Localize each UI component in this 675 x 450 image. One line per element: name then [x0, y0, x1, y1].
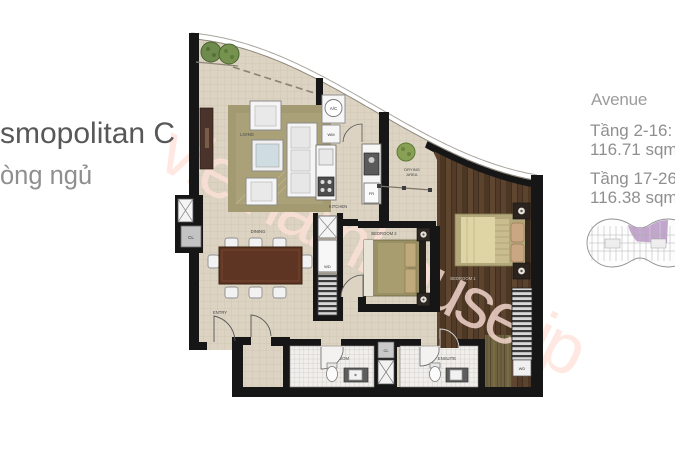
- svg-text:LIVING: LIVING: [240, 132, 254, 137]
- svg-text:smopolitan C: smopolitan C: [0, 117, 175, 150]
- svg-text:FR: FR: [369, 191, 374, 196]
- svg-text:CL: CL: [383, 348, 389, 353]
- svg-text:Tầng 17-26:: Tầng 17-26:: [590, 169, 675, 188]
- svg-text:ENTRY: ENTRY: [213, 310, 227, 315]
- svg-text:DINING: DINING: [251, 229, 266, 234]
- svg-text:Avenue: Avenue: [591, 90, 647, 109]
- svg-text:WM: WM: [327, 132, 334, 137]
- svg-text:BEDROOM 1: BEDROOM 1: [450, 276, 476, 281]
- svg-text:òng ngủ: òng ngủ: [0, 162, 92, 190]
- svg-text:BEDROOM 2: BEDROOM 2: [371, 231, 397, 236]
- svg-text:CL: CL: [188, 235, 194, 240]
- svg-text:AREA: AREA: [407, 172, 418, 177]
- svg-text:Tầng 2-16:: Tầng 2-16:: [590, 121, 672, 140]
- svg-text:KITCHEN: KITCHEN: [329, 204, 347, 209]
- svg-text:A/C: A/C: [330, 106, 338, 111]
- svg-text:116.71 sqm: 116.71 sqm: [590, 140, 675, 159]
- svg-text:116.38 sqm: 116.38 sqm: [590, 188, 675, 207]
- svg-text:WD: WD: [324, 264, 331, 269]
- svg-text:ENSUITE: ENSUITE: [438, 356, 456, 361]
- svg-text:WD: WD: [519, 366, 526, 371]
